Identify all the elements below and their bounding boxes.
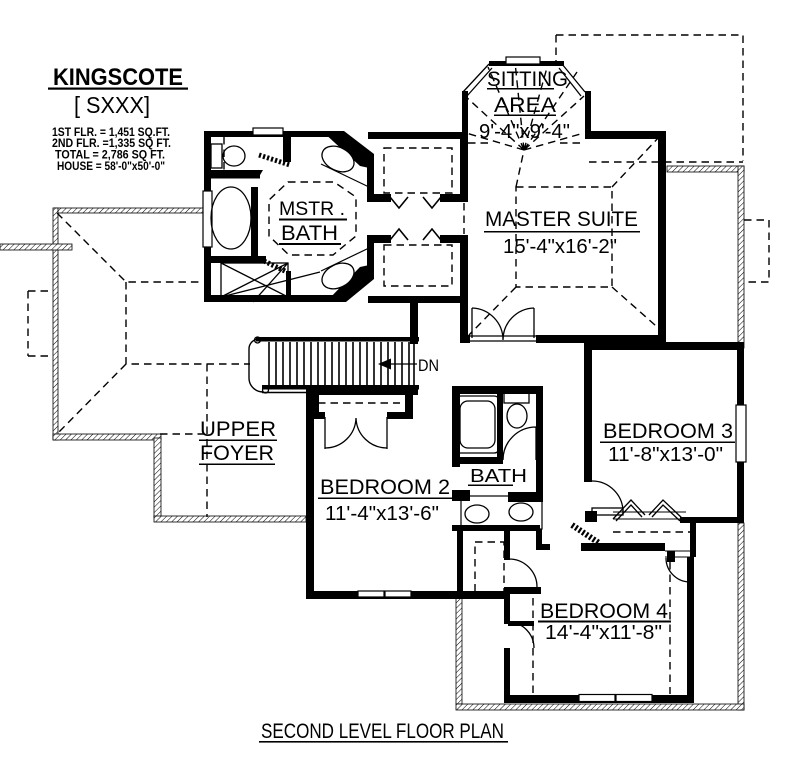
svg-text:HOUSE = 58'-0"x50'-0": HOUSE = 58'-0"x50'-0" [57, 159, 165, 173]
svg-text:BEDROOM 3: BEDROOM 3 [603, 419, 733, 443]
svg-text:KINGSCOTE: KINGSCOTE [53, 64, 183, 91]
svg-text:FOYER: FOYER [200, 441, 274, 465]
svg-text:BATH: BATH [470, 466, 527, 486]
svg-text:BEDROOM 4: BEDROOM 4 [540, 600, 668, 623]
svg-text:11'-8"x13'-0": 11'-8"x13'-0" [608, 444, 723, 466]
svg-text:[ SXXX]: [ SXXX] [74, 92, 150, 118]
svg-text:MSTR .: MSTR . [279, 198, 345, 220]
svg-text:15'-4"x16'-2": 15'-4"x16'-2" [503, 236, 617, 258]
svg-text:DN: DN [418, 357, 439, 375]
svg-text:SECOND LEVEL FLOOR PLAN: SECOND LEVEL FLOOR PLAN [261, 719, 504, 743]
svg-text:BATH: BATH [281, 222, 338, 245]
svg-text:14'-4"x11'-8": 14'-4"x11'-8" [545, 622, 662, 644]
svg-text:UPPER: UPPER [200, 417, 276, 441]
svg-text:AREA: AREA [494, 93, 557, 117]
svg-text:BEDROOM 2: BEDROOM 2 [320, 475, 450, 499]
svg-text:11'-4"x13'-6": 11'-4"x13'-6" [325, 503, 439, 525]
svg-text:9'-4"x9'-4": 9'-4"x9'-4" [479, 121, 570, 143]
svg-text:SITTING: SITTING [487, 67, 568, 91]
svg-text:MASTER SUITE: MASTER SUITE [485, 207, 638, 231]
